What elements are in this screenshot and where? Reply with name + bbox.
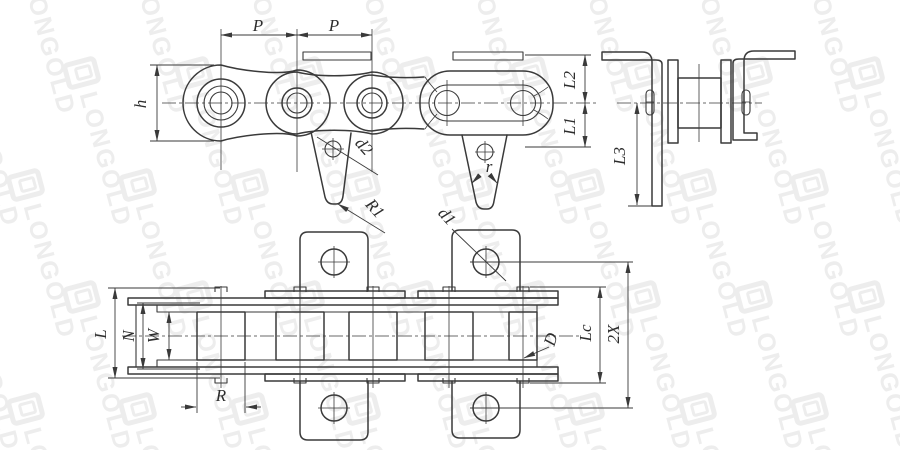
attachment-flange-top-right [418,291,558,298]
tab-hole-crosshair [322,138,344,160]
bent-attachment-left [602,52,662,206]
dim-label-l1: L1 [560,117,579,136]
screenshot-root: LONGOLDLONGOLDLONGOLDLONGOLDLONGOLDLONGO… [0,0,900,450]
plan-pin-axes [221,286,523,388]
dim-label-d1: d1 [434,204,459,229]
end-view [602,51,795,206]
attachment-flange-edge-left [303,52,371,60]
inner-plate-bottom [157,360,537,367]
plan-view [122,230,580,440]
dim-label-l3: L3 [610,147,629,166]
dim-label-D: D [540,330,562,349]
inner-plate-left [668,60,678,143]
attachment-flange-bottom-left [265,374,405,381]
dim-label-N: N [119,329,138,343]
dim-label-l2: L2 [560,71,579,90]
attachment-flange-bottom-right [418,374,558,381]
dim-label-W: W [144,327,163,343]
dim-label-pitch-1: P [252,16,263,35]
dim-label-r: r [486,157,493,176]
dim-label-R: R [215,386,227,405]
dim-label-r1: R1 [361,194,388,221]
inner-plate-right [721,60,731,143]
pin-end-right [742,90,750,115]
attachment-flange-edge-right [453,52,523,60]
inner-plate-top [157,305,537,312]
side-elevation-view [162,29,598,209]
dim-label-2X: 2X [604,324,623,344]
dim-label-d2: d2 [351,134,377,160]
outer-plate-top [128,298,558,305]
pin-end-left [646,90,654,115]
dim-label-L: L [91,329,110,339]
hole-crosshair [318,392,350,424]
attachment-tab-right [462,135,507,209]
dim-label-Lc: Lc [576,324,595,342]
hole-crosshair [318,246,350,278]
leader-r-arrow [490,175,497,183]
outer-plate-bottom [128,367,558,374]
technical-drawing-canvas: P P h L2 L1 L3 d2 R1 d1 r L N W R D Lc 2… [0,0,900,450]
dim-label-h: h [131,100,150,109]
dimension-lines [108,35,633,413]
attachment-tab-left [311,132,351,204]
attachment-flange-top-left [265,291,405,298]
pin-head-caps [215,287,529,383]
leader-r-arrow [472,175,480,183]
dim-label-pitch-2: P [328,16,339,35]
